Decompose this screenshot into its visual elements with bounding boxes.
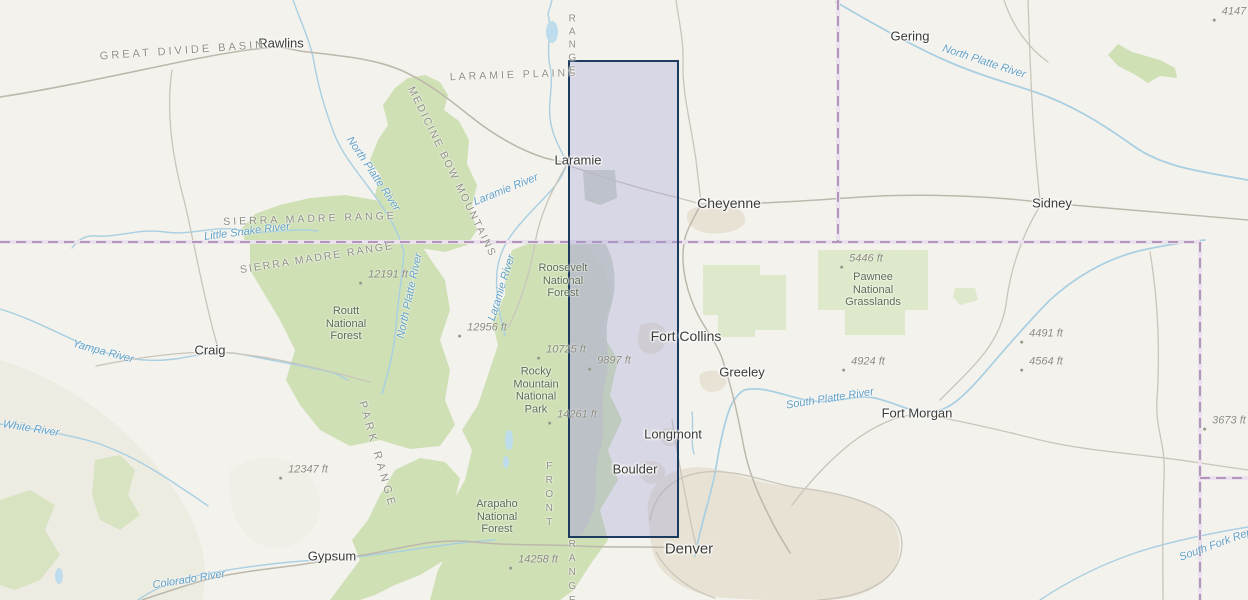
river-label: Laramie River: [486, 253, 518, 322]
city-label: Greeley: [719, 366, 765, 381]
region-label: LARAMIE PLAINS: [450, 67, 579, 84]
river-label: White River: [2, 418, 60, 439]
elevation-label: 4924 ft: [851, 356, 885, 369]
city-label: Laramie: [555, 154, 602, 169]
region-label: RANGE: [566, 14, 578, 79]
forest-label: Pawnee National Grasslands: [845, 271, 901, 309]
elevation-label: 14261 ft: [557, 409, 597, 422]
forest-label: Routt National Forest: [326, 305, 366, 343]
elevation-label: 14258 ft: [518, 554, 558, 567]
city-label: Cheyenne: [697, 195, 761, 211]
river-label: South Platte River: [785, 386, 875, 412]
elevation-label: 9897 ft: [597, 355, 631, 368]
elevation-label: 3673 ft: [1212, 415, 1246, 428]
river-label: Laramie River: [472, 171, 540, 208]
elevation-label: 5446 ft: [849, 253, 883, 266]
city-label: Denver: [665, 540, 713, 557]
city-label: Fort Collins: [651, 328, 722, 344]
river-label: Little Snake River: [203, 220, 290, 243]
city-label: Boulder: [613, 463, 658, 478]
city-label: Craig: [194, 344, 225, 359]
region-label: SIERRA MADRE RANGE: [223, 210, 397, 228]
river-label: Colorado River: [152, 568, 226, 592]
region-label: PARK RANGE: [356, 400, 399, 510]
river-label: Yampa River: [71, 338, 135, 366]
river-label: North Platte River: [343, 134, 402, 213]
river-label: North Platte River: [395, 252, 425, 340]
forest-label: Arapaho National Forest: [476, 498, 518, 536]
map-canvas[interactable]: RawlinsLaramieCheyenneGeringSidneyCraigF…: [0, 0, 1248, 600]
region-label: MEDICINE BOW MOUNTAINS: [405, 85, 498, 260]
elevation-label: 12347 ft: [288, 464, 328, 477]
elevation-label: 10725 ft: [546, 344, 586, 357]
map-labels-layer: RawlinsLaramieCheyenneGeringSidneyCraigF…: [0, 0, 1248, 600]
city-label: Gypsum: [308, 550, 356, 565]
elevation-label: 12956 ft: [467, 322, 507, 335]
region-label: SIERRA MADRE RANGE: [239, 240, 395, 276]
region-label: RANGE: [566, 539, 578, 600]
region-label: GREAT DIVIDE BASIN: [99, 39, 266, 63]
city-label: Longmont: [644, 428, 702, 443]
elevation-label: 4564 ft: [1029, 356, 1063, 369]
city-label: Sidney: [1032, 197, 1072, 212]
region-label: FRONT: [543, 461, 555, 531]
elevation-label: 12191 ft: [368, 269, 408, 282]
forest-label: Rocky Mountain National Park: [513, 366, 558, 417]
river-label: North Platte River: [941, 43, 1027, 82]
forest-label: Roosevelt National Forest: [539, 262, 588, 300]
city-label: Gering: [890, 30, 929, 45]
elevation-label: 4147: [1222, 6, 1246, 19]
elevation-label: 4491 ft: [1029, 328, 1063, 341]
city-label: Rawlins: [258, 37, 304, 52]
city-label: Fort Morgan: [882, 407, 953, 422]
river-label: South Fork Rep: [1178, 526, 1248, 564]
